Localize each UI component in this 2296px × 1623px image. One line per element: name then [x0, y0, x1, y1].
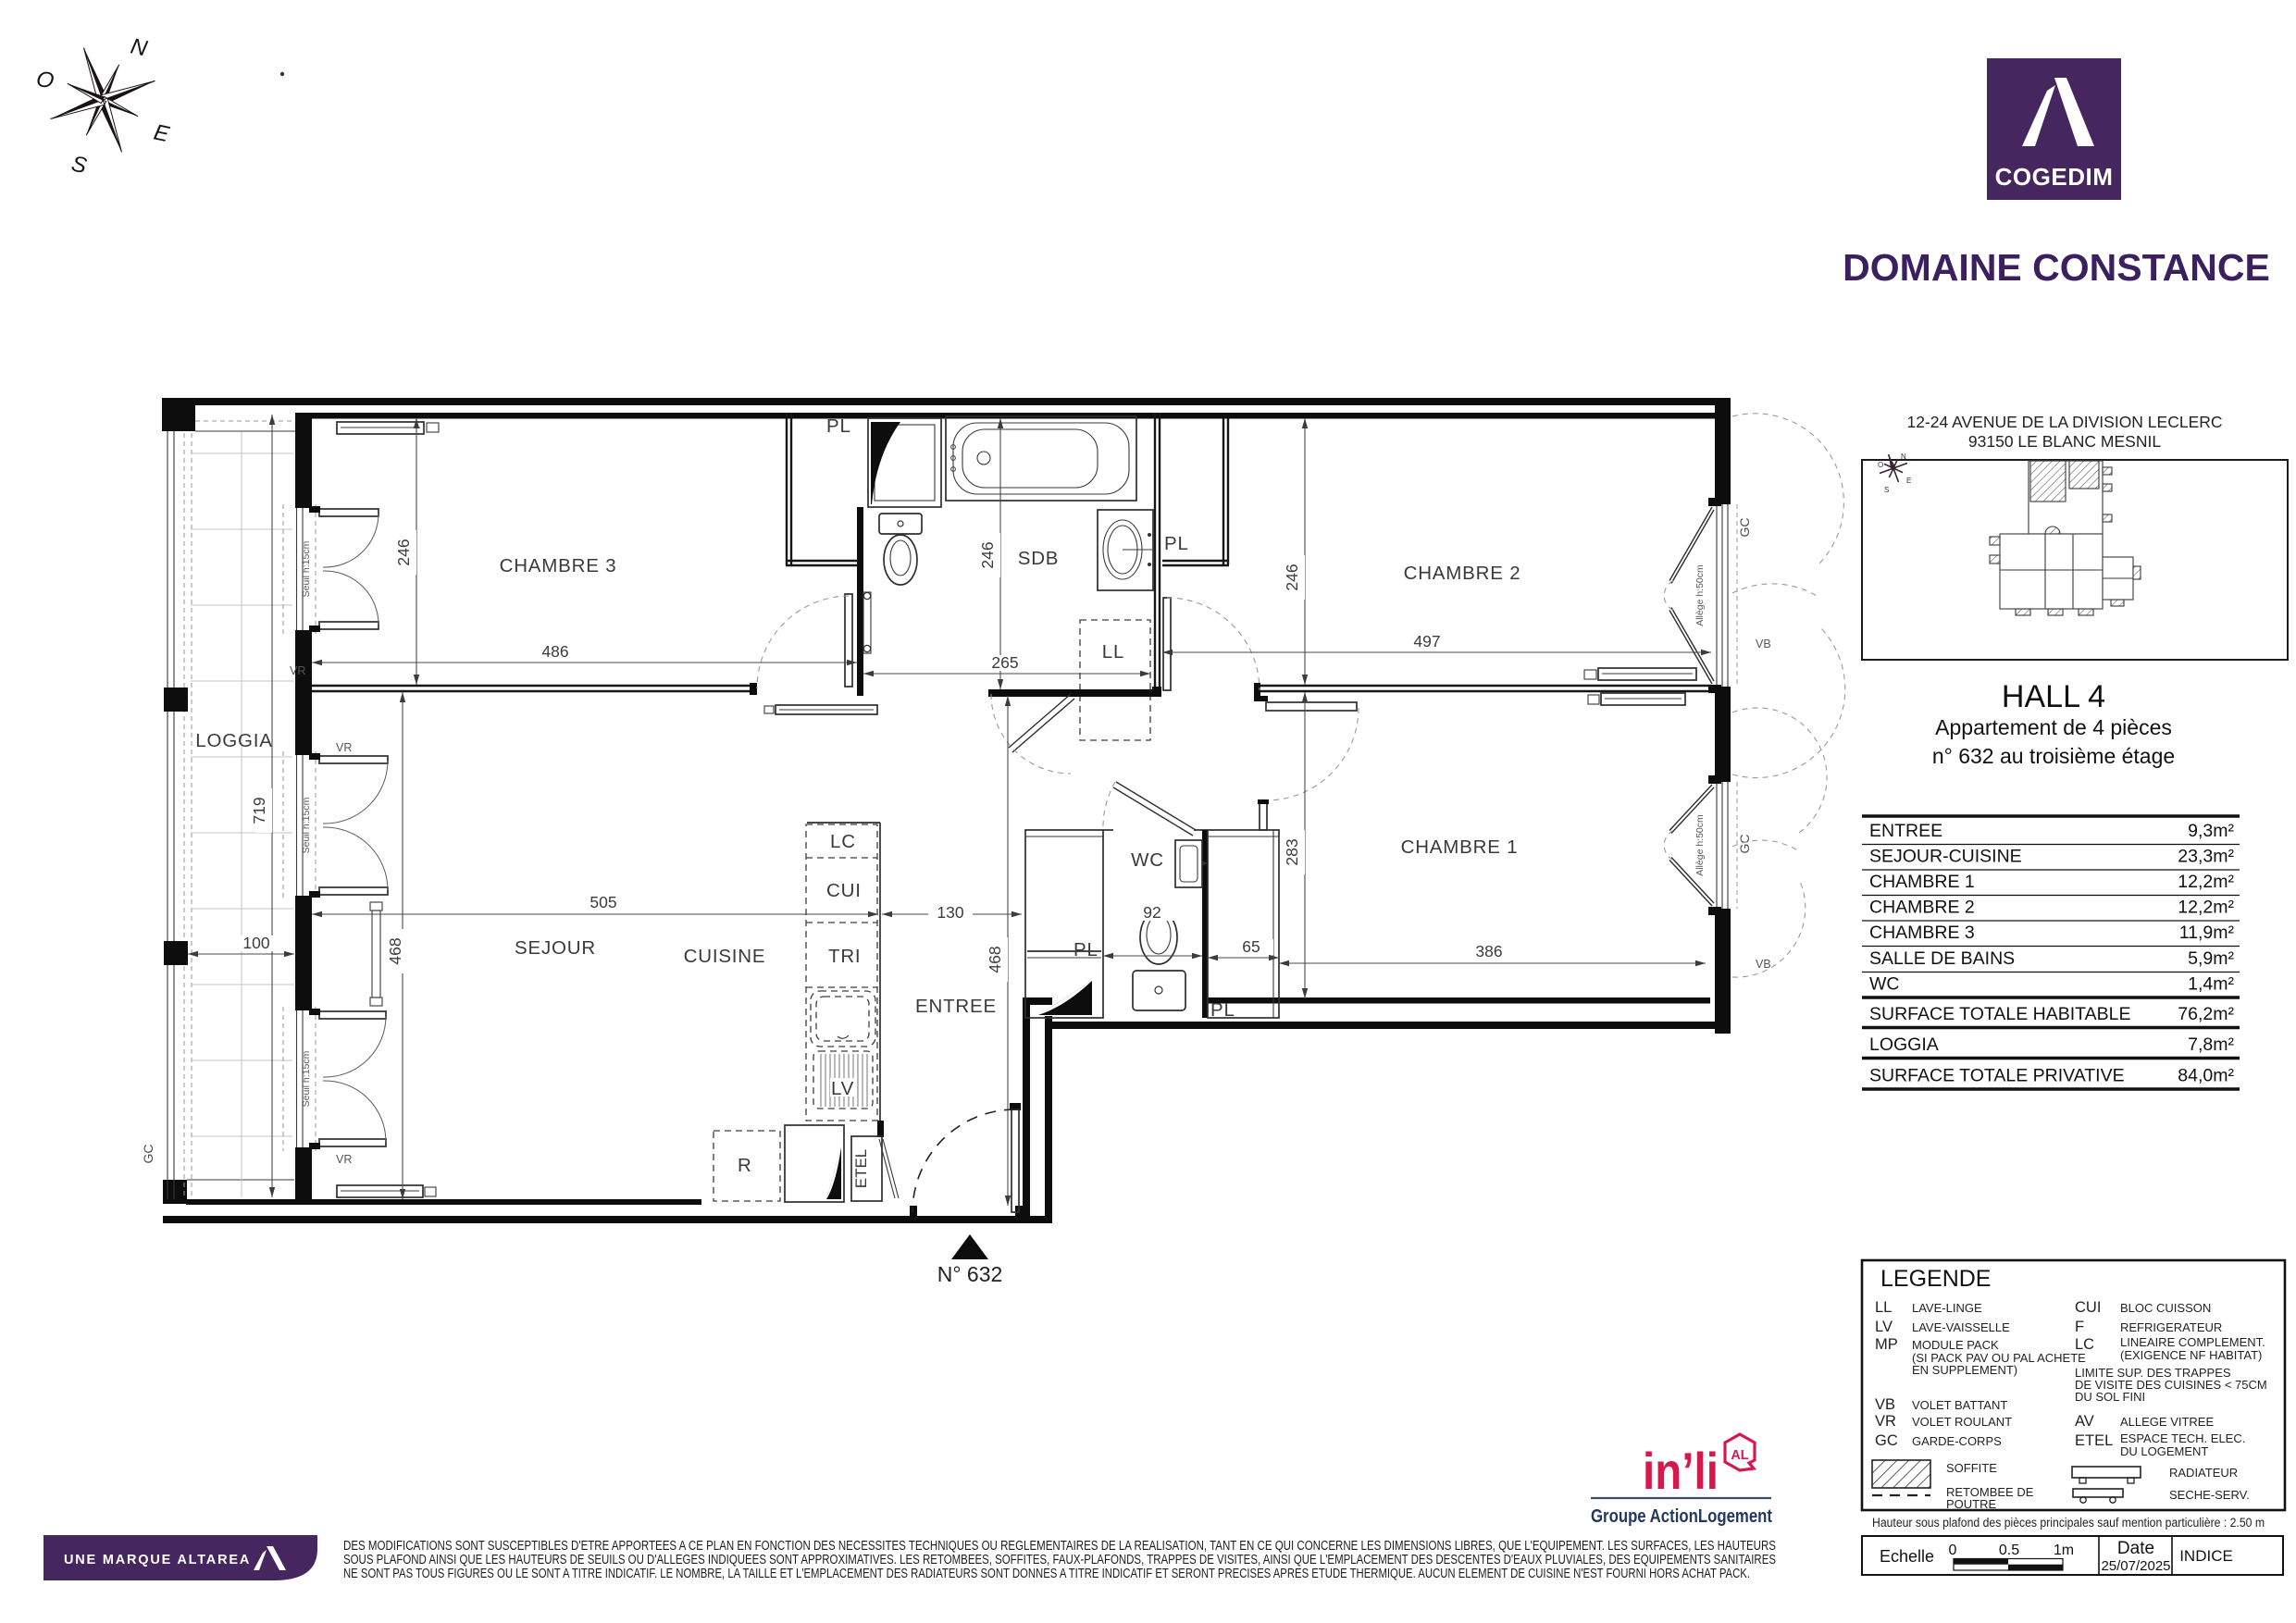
- svg-text:NE SONT PAS TOUS FIGURES OU LE: NE SONT PAS TOUS FIGURES OU LE SONT A TI…: [343, 1567, 1750, 1581]
- svg-text:O: O: [1878, 461, 1883, 469]
- svg-text:Seuil h:15cm: Seuil h:15cm: [301, 797, 312, 853]
- svg-text:INDICE: INDICE: [2179, 1547, 2233, 1565]
- svg-text:84,0m²: 84,0m²: [2178, 1066, 2234, 1086]
- svg-text:Echelle: Echelle: [1880, 1547, 1934, 1566]
- svg-text:LC: LC: [2075, 1336, 2094, 1353]
- svg-text:E: E: [1906, 477, 1911, 485]
- svg-text:SURFACE TOTALE PRIVATIVE: SURFACE TOTALE PRIVATIVE: [1869, 1066, 2125, 1086]
- svg-text:PL: PL: [826, 415, 851, 437]
- svg-text:93150 LE BLANC MESNIL: 93150 LE BLANC MESNIL: [1968, 432, 2161, 451]
- svg-text:LAVE-LINGE: LAVE-LINGE: [1912, 1301, 1982, 1315]
- svg-text:ETEL: ETEL: [852, 1149, 870, 1189]
- svg-text:ESPACE TECH. ELEC.: ESPACE TECH. ELEC.: [2120, 1431, 2245, 1445]
- svg-text:246: 246: [394, 539, 413, 565]
- svg-text:LOGGIA: LOGGIA: [195, 730, 272, 751]
- svg-text:Allège h:50cm: Allège h:50cm: [1694, 564, 1706, 626]
- svg-text:Allège h:50cm: Allège h:50cm: [1694, 814, 1706, 876]
- svg-text:R: R: [738, 1155, 752, 1176]
- svg-text:23,3m²: 23,3m²: [2178, 847, 2234, 867]
- svg-text:497: 497: [1413, 632, 1440, 650]
- svg-text:246: 246: [978, 541, 997, 568]
- svg-text:MODULE PACK: MODULE PACK: [1912, 1338, 1999, 1352]
- svg-text:12-24 AVENUE DE LA DIVISION LE: 12-24 AVENUE DE LA DIVISION LECLERC: [1906, 413, 2222, 431]
- svg-text:VB: VB: [1756, 958, 1771, 971]
- svg-text:CUI: CUI: [826, 880, 862, 901]
- svg-text:CHAMBRE 3: CHAMBRE 3: [500, 555, 617, 576]
- svg-text:246: 246: [1283, 564, 1301, 590]
- svg-text:SEJOUR: SEJOUR: [515, 937, 596, 959]
- svg-text:130: 130: [937, 903, 963, 922]
- svg-text:LINEAIRE COMPLEMENT.: LINEAIRE COMPLEMENT.: [2120, 1335, 2265, 1349]
- svg-text:PL: PL: [1074, 939, 1098, 960]
- svg-text:LL: LL: [1102, 641, 1124, 663]
- svg-text:(EXIGENCE NF HABITAT): (EXIGENCE NF HABITAT): [2120, 1348, 2262, 1362]
- svg-text:386: 386: [1475, 942, 1502, 960]
- svg-text:RADIATEUR: RADIATEUR: [2169, 1466, 2238, 1480]
- svg-text:HALL 4: HALL 4: [2002, 679, 2105, 714]
- svg-text:1m: 1m: [2054, 1542, 2074, 1558]
- svg-text:Seuil h:15cm: Seuil h:15cm: [301, 540, 312, 597]
- svg-text:505: 505: [590, 893, 616, 911]
- svg-text:TRI: TRI: [828, 946, 861, 967]
- svg-text:POUTRE: POUTRE: [1946, 1497, 1997, 1511]
- svg-text:LL: LL: [1875, 1299, 1892, 1316]
- svg-text:Seuil h:15cm: Seuil h:15cm: [301, 1050, 312, 1107]
- svg-text:F: F: [2075, 1319, 2084, 1335]
- svg-text:265: 265: [991, 653, 1018, 672]
- svg-text:SURFACE TOTALE HABITABLE: SURFACE TOTALE HABITABLE: [1869, 1004, 2130, 1024]
- svg-text:Groupe ActionLogement: Groupe ActionLogement: [1591, 1506, 1772, 1527]
- svg-text:CHAMBRE 1: CHAMBRE 1: [1401, 836, 1519, 858]
- svg-text:LEGENDE: LEGENDE: [1880, 1266, 1991, 1292]
- svg-text:SOUS PLAFOND AINSI QUE LES HAU: SOUS PLAFOND AINSI QUE LES HAUTEURS DE S…: [343, 1553, 1776, 1567]
- svg-text:DU LOGEMENT: DU LOGEMENT: [2120, 1444, 2208, 1458]
- svg-text:12,2m²: 12,2m²: [2178, 872, 2234, 892]
- svg-text:SECHE-SERV.: SECHE-SERV.: [2169, 1488, 2250, 1502]
- svg-text:COGEDIM: COGEDIM: [1995, 163, 2114, 191]
- svg-text:WC: WC: [1869, 974, 1900, 995]
- svg-text:PL: PL: [1210, 999, 1235, 1021]
- svg-text:VB: VB: [1756, 638, 1771, 650]
- svg-text:CHAMBRE 2: CHAMBRE 2: [1869, 898, 1975, 918]
- svg-text:PL: PL: [1164, 533, 1189, 554]
- svg-text:SOFFITE: SOFFITE: [1946, 1461, 1997, 1475]
- svg-text:CHAMBRE 3: CHAMBRE 3: [1869, 923, 1975, 943]
- svg-text:ALLEGE VITREE: ALLEGE VITREE: [2120, 1415, 2214, 1429]
- svg-text:LOGGIA: LOGGIA: [1869, 1035, 1939, 1055]
- svg-text:Date: Date: [2117, 1539, 2154, 1558]
- svg-text:1,4m²: 1,4m²: [2188, 974, 2234, 995]
- svg-text:CHAMBRE 1: CHAMBRE 1: [1869, 872, 1975, 892]
- svg-text:GARDE-CORPS: GARDE-CORPS: [1912, 1434, 2002, 1448]
- svg-text:ENTREE: ENTREE: [915, 996, 997, 1017]
- svg-text:0: 0: [1949, 1542, 1957, 1558]
- svg-text:S: S: [1884, 486, 1889, 494]
- svg-text:UNE MARQUE ALTAREA: UNE MARQUE ALTAREA: [64, 1553, 251, 1567]
- svg-text:AL: AL: [1731, 1448, 1748, 1463]
- svg-text:7,8m²: 7,8m²: [2188, 1035, 2234, 1055]
- svg-text:BLOC CUISSON: BLOC CUISSON: [2120, 1301, 2211, 1315]
- svg-text:in’li: in’li: [1643, 1442, 1719, 1500]
- svg-text:Hauteur sous plafond des pièce: Hauteur sous plafond des pièces principa…: [1872, 1516, 2265, 1530]
- svg-text:Appartement de 4 pièces: Appartement de 4 pièces: [1935, 715, 2172, 739]
- svg-text:GC: GC: [141, 1145, 155, 1164]
- svg-text:LAVE-VAISSELLE: LAVE-VAISSELLE: [1912, 1320, 2010, 1334]
- svg-text:SALLE DE BAINS: SALLE DE BAINS: [1869, 948, 2015, 969]
- svg-text:468: 468: [386, 937, 404, 964]
- svg-text:AV: AV: [2075, 1413, 2094, 1430]
- svg-text:N: N: [1901, 452, 1906, 461]
- svg-text:SEJOUR-CUISINE: SEJOUR-CUISINE: [1869, 847, 2022, 867]
- svg-text:65: 65: [1242, 937, 1260, 956]
- svg-text:VR: VR: [336, 741, 352, 754]
- svg-text:719: 719: [250, 797, 268, 824]
- svg-text:VOLET ROULANT: VOLET ROULANT: [1912, 1415, 2012, 1429]
- svg-text:GC: GC: [1875, 1432, 1898, 1449]
- svg-text:REFRIGERATEUR: REFRIGERATEUR: [2120, 1320, 2222, 1334]
- svg-text:11,9m²: 11,9m²: [2179, 923, 2235, 943]
- svg-text:GC: GC: [1737, 835, 1752, 854]
- svg-text:92: 92: [1143, 903, 1160, 922]
- svg-text:CUISINE: CUISINE: [684, 946, 766, 967]
- svg-text:ENTREE: ENTREE: [1869, 821, 1942, 841]
- svg-text:SDB: SDB: [1018, 548, 1060, 569]
- svg-text:5,9m²: 5,9m²: [2188, 948, 2234, 969]
- svg-text:CHAMBRE 2: CHAMBRE 2: [1404, 563, 1521, 584]
- svg-text:MP: MP: [1875, 1336, 1898, 1353]
- svg-text:EN SUPPLEMENT): EN SUPPLEMENT): [1912, 1363, 2017, 1377]
- svg-text:283: 283: [1283, 838, 1301, 865]
- svg-text:VR: VR: [336, 1153, 352, 1166]
- svg-text:LV: LV: [831, 1078, 854, 1099]
- svg-text:DES MODIFICATIONS SONT SUSCEPT: DES MODIFICATIONS SONT SUSCEPTIBLES D'ET…: [343, 1539, 1776, 1554]
- svg-text:WC: WC: [1131, 849, 1164, 871]
- svg-text:76,2m²: 76,2m²: [2178, 1004, 2234, 1024]
- svg-text:LC: LC: [830, 831, 856, 852]
- svg-text:25/07/2025: 25/07/2025: [2101, 1558, 2170, 1574]
- svg-text:GC: GC: [1737, 518, 1752, 538]
- svg-text:VOLET BATTANT: VOLET BATTANT: [1912, 1398, 2007, 1412]
- svg-text:CUI: CUI: [2075, 1299, 2101, 1316]
- svg-text:0.5: 0.5: [1999, 1542, 2019, 1558]
- svg-text:N° 632: N° 632: [937, 1262, 1003, 1286]
- svg-text:ETEL: ETEL: [2075, 1432, 2113, 1449]
- svg-text:9,3m²: 9,3m²: [2188, 821, 2234, 841]
- svg-text:468: 468: [986, 946, 1004, 973]
- svg-text:486: 486: [541, 642, 568, 661]
- svg-text:100: 100: [242, 934, 269, 952]
- svg-text:VR: VR: [290, 664, 305, 677]
- svg-text:DOMAINE CONSTANCE: DOMAINE CONSTANCE: [1843, 246, 2270, 289]
- svg-text:VB: VB: [1875, 1396, 1895, 1413]
- svg-text:DU SOL FINI: DU SOL FINI: [2075, 1390, 2145, 1404]
- svg-text:LV: LV: [1875, 1319, 1893, 1335]
- svg-text:12,2m²: 12,2m²: [2178, 898, 2234, 918]
- svg-text:VR: VR: [1875, 1413, 1896, 1430]
- svg-text:n° 632 au troisième étage: n° 632 au troisième étage: [1932, 744, 2175, 768]
